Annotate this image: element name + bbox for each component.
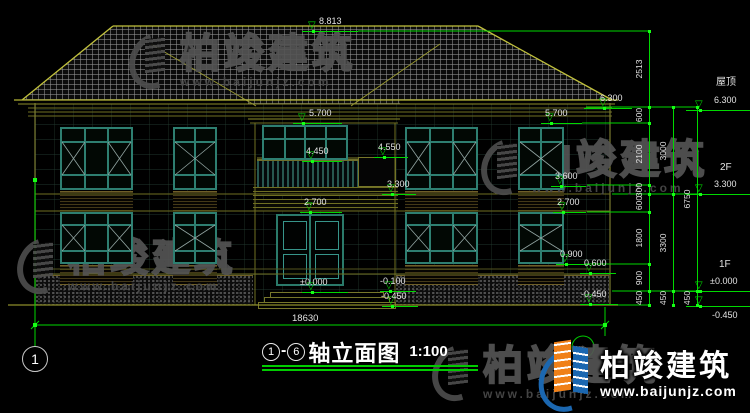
window-mullion	[84, 129, 86, 188]
grip-point	[383, 156, 386, 159]
axis-bubble-1: 1	[22, 346, 48, 372]
window-mullion	[429, 129, 431, 188]
axis-bubble-1-label: 1	[31, 351, 39, 367]
level-marker-line	[382, 306, 418, 307]
dim-value: 2100	[634, 134, 644, 174]
level-marker-line	[293, 123, 342, 124]
level-value: -0.450	[381, 291, 407, 301]
window-mullion	[540, 129, 542, 188]
dim-tick	[696, 290, 699, 293]
level-value: 2.700	[557, 197, 580, 207]
window-mullion	[407, 250, 476, 252]
grip-point	[565, 263, 568, 266]
window-mullion	[452, 129, 454, 188]
dim-tick	[648, 106, 651, 109]
dim-tick	[648, 184, 651, 187]
dim-value: 600	[634, 95, 644, 135]
level-marker-line	[300, 212, 342, 213]
grip-point	[550, 122, 553, 125]
dim-tick	[672, 304, 675, 307]
level-value: 4.450	[306, 146, 329, 156]
total-width-dimension: 18630	[292, 314, 318, 324]
level-marker-line	[584, 108, 632, 109]
level-marker-line	[302, 31, 358, 32]
grip-point	[603, 107, 606, 110]
dim-tick	[648, 290, 651, 293]
level-value: 5.700	[545, 108, 568, 118]
level-name: 屋顶	[716, 78, 736, 88]
level-value: 6.300	[600, 93, 623, 103]
level-name: 1F	[719, 260, 731, 270]
level-value: 8.813	[319, 16, 342, 26]
grip-point	[560, 185, 563, 188]
level-marker-line	[686, 110, 750, 111]
dim-tick	[696, 304, 699, 307]
title-underline	[262, 369, 478, 371]
grip-point	[562, 211, 565, 214]
dim-tick	[648, 122, 651, 125]
grip-point	[312, 30, 315, 33]
dim-value: 1800	[634, 218, 644, 258]
window-mullion	[407, 174, 476, 176]
level-value: 3.300	[714, 179, 737, 189]
grip-point	[302, 122, 305, 125]
window-mullion	[407, 141, 476, 143]
dim-tick	[648, 304, 651, 307]
brand-logo: 柏竣建筑 www.baijunjz.com	[538, 336, 750, 412]
dim-value: 450	[682, 278, 692, 318]
watermark: 柏竣建筑 www.baijunjz.com	[130, 32, 356, 90]
window-1f-left-large	[60, 212, 133, 264]
window-2f-left-large	[60, 127, 133, 190]
level-marker-line	[553, 212, 586, 213]
level-marker-line	[580, 304, 618, 305]
level-marker-line	[580, 273, 616, 274]
grip-point	[589, 303, 592, 306]
grip-point	[589, 272, 592, 275]
level-name: 2F	[720, 163, 732, 173]
window-mullion	[175, 141, 215, 143]
window-mullion	[175, 224, 215, 226]
title-underline	[262, 365, 478, 367]
window-mullion	[62, 224, 131, 226]
level-value: 6.300	[714, 95, 737, 105]
dim-value: 450	[634, 278, 644, 318]
level-value: 0.900	[560, 249, 583, 259]
dim-tick	[648, 263, 651, 266]
grip-point	[311, 291, 314, 294]
dim-tick	[648, 211, 651, 214]
window-mullion	[264, 138, 346, 140]
level-value: -0.450	[581, 289, 607, 299]
window-mullion	[62, 174, 131, 176]
level-marker-line	[302, 292, 348, 293]
window-mullion	[84, 214, 86, 262]
level-value: 4.550	[378, 142, 401, 152]
grip-point	[699, 290, 702, 293]
dim-tick	[672, 193, 675, 196]
watermark-brand: 柏竣建筑	[180, 34, 356, 74]
watermark-url: www.baijunjz.com	[68, 279, 236, 293]
level-value: 0.600	[584, 258, 607, 268]
level-marker-line	[302, 161, 342, 162]
window-mullion	[452, 214, 454, 262]
window-mullion	[175, 250, 215, 252]
window-2f-right-large	[405, 127, 478, 190]
brand-name: 柏竣建筑	[600, 350, 737, 383]
window-mullion	[175, 174, 215, 176]
grip-point	[309, 211, 312, 214]
grip-point	[391, 193, 394, 196]
dim-tick	[696, 106, 699, 109]
title-text: 轴立面图	[308, 336, 400, 368]
dim-tick	[672, 106, 675, 109]
dim-chain-line	[697, 107, 698, 305]
window-mullion	[540, 214, 542, 262]
dim-value: 6750	[682, 179, 692, 219]
watermark-logo-icon	[130, 32, 180, 90]
level-value: ±0.000	[710, 276, 737, 286]
level-marker-line	[382, 194, 416, 195]
level-value: -0.100	[380, 276, 406, 286]
dim-value: 600	[634, 183, 644, 223]
level-value: -0.450	[712, 310, 738, 320]
dim-value: 3000	[658, 131, 668, 171]
window-1f-right-large	[405, 212, 478, 264]
level-value: 5.700	[309, 108, 332, 118]
window-mullion	[194, 129, 196, 188]
dim-tick	[648, 193, 651, 196]
dim-value: 2513	[634, 49, 644, 89]
window-mullion	[429, 214, 431, 262]
title-dash: -	[281, 342, 286, 360]
title-scale: 1:100	[409, 343, 447, 360]
window-mullion	[520, 141, 562, 143]
dim-tick	[672, 290, 675, 293]
window-mullion	[407, 224, 476, 226]
axis-end-bubble: 6	[287, 343, 305, 361]
level-value: 3.300	[387, 179, 410, 189]
level-marker-line	[551, 186, 586, 187]
window-mullion	[62, 141, 131, 143]
cad-elevation-canvas: 柏竣建筑 www.baijunjz.com 柏竣建筑 www.baijunjz.…	[0, 0, 750, 413]
dim-chain-line	[673, 107, 674, 305]
level-marker-line	[541, 123, 582, 124]
window-mullion	[284, 127, 286, 158]
window-mullion	[194, 214, 196, 262]
window-mullion	[62, 250, 131, 252]
window-mullion	[107, 214, 109, 262]
grip-point	[699, 109, 702, 112]
grip-point	[311, 160, 314, 163]
brand-logo-icon	[538, 337, 600, 411]
level-value: 3.600	[555, 171, 578, 181]
level-marker-line	[686, 194, 750, 195]
grip-point	[391, 305, 394, 308]
watermark-url: www.baijunjz.com	[180, 75, 356, 89]
dim-tick	[648, 30, 651, 33]
grip-point	[699, 193, 702, 196]
dim-value: 3300	[658, 223, 668, 263]
axis-start-bubble: 1	[262, 343, 280, 361]
watermark: 柏竣建筑 www.baijunjz.com	[482, 138, 708, 196]
level-value: ±0.000	[300, 277, 327, 287]
window-mullion	[520, 250, 562, 252]
level-value: 2.700	[304, 197, 327, 207]
brand-url: www.baijunjz.com	[600, 383, 737, 399]
window-mullion	[520, 224, 562, 226]
grip-point	[699, 305, 702, 308]
window-mullion	[107, 129, 109, 188]
dim-value: 450	[658, 278, 668, 318]
level-marker-line	[374, 157, 408, 158]
